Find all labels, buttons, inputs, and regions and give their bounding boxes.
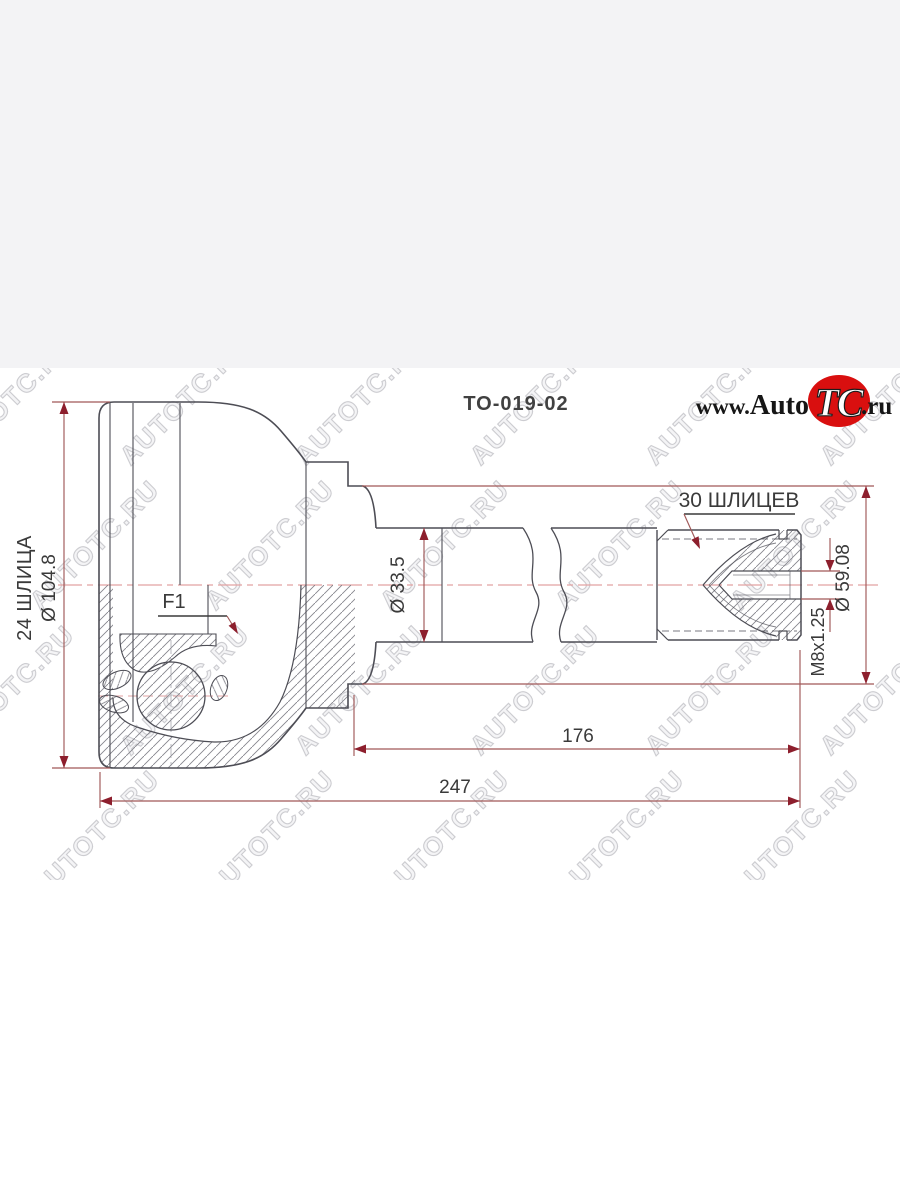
label-total-length: 247 [439, 777, 471, 798]
leader-marking [158, 616, 238, 634]
cage-section-c [207, 673, 231, 703]
label-outer-diameter: Ø 104.8 [39, 554, 60, 622]
label-shaft-length: 176 [562, 726, 594, 747]
label-spline-count-inner: 24 ШЛИЦА [14, 535, 36, 641]
label-step-diameter: Ø 59.08 [833, 544, 854, 612]
logo-text-auto: Auto [750, 390, 809, 421]
label-thread-spec: M8x1.25 [808, 607, 828, 676]
label-spline-count-outer: 30 ШЛИЦЕВ [679, 489, 800, 512]
svg-text:www.Auto: www.Auto [696, 390, 809, 421]
label-shaft-diameter: Ø 33.5 [388, 556, 409, 613]
label-marking: F1 [162, 591, 185, 613]
logo-text-ru: .ru [861, 393, 892, 420]
cross-section-hatching [97, 530, 801, 768]
logo-text-www: www. [696, 394, 750, 419]
catalog-product-image: AUTOTC.RUAUTOTC.RUAUTOTC.RUAUTOTC.RUAUTO… [0, 0, 900, 1200]
part-number-label: TO-019-02 [463, 393, 568, 415]
ball-bearing-section [137, 662, 205, 730]
site-logo: TC www.Auto .ru [696, 375, 893, 427]
cv-joint-technical-drawing: 24 ШЛИЦА Ø 104.8 Ø 33.5 Ø 59.08 M8x1.25 … [0, 0, 900, 1200]
bell-wall-section [99, 585, 355, 768]
logo-text-tc: TC [814, 380, 864, 425]
